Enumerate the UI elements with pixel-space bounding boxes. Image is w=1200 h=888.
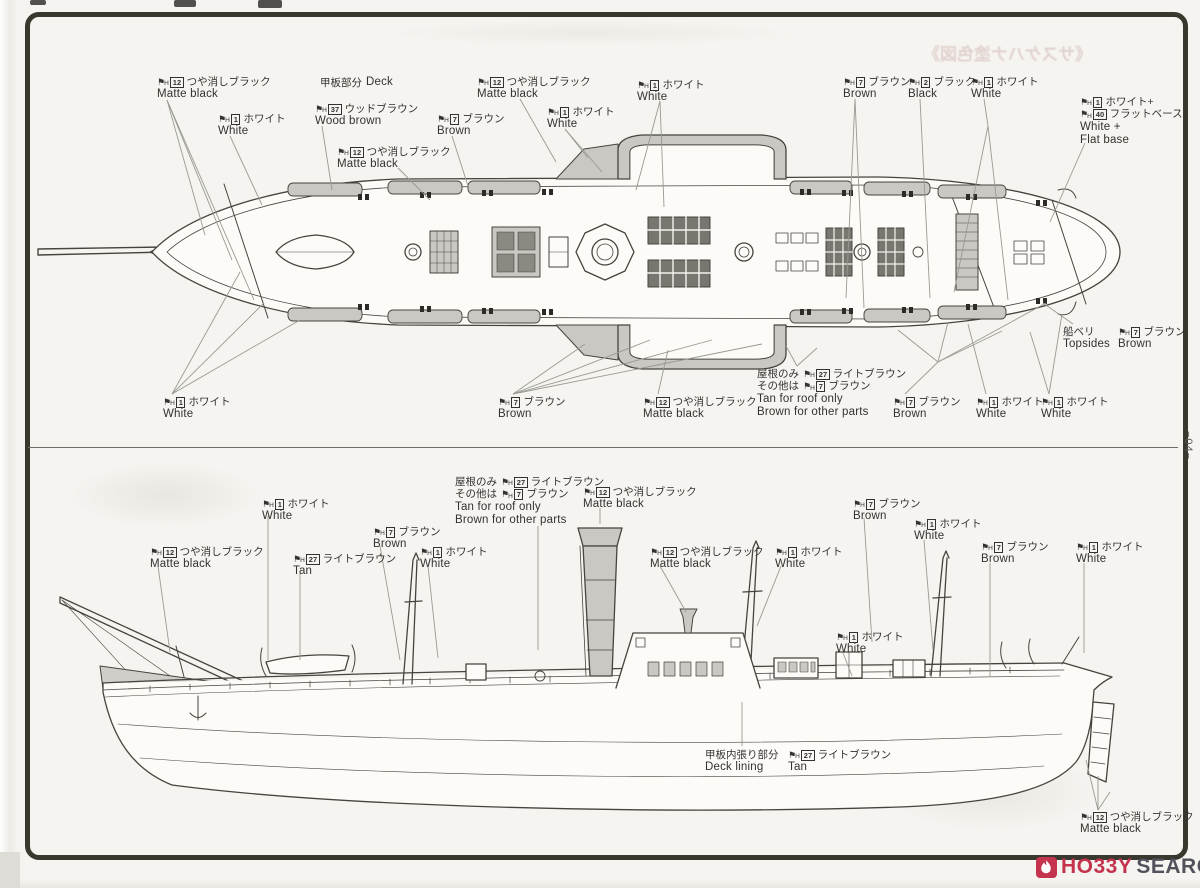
callout-en-text: Matte black [150, 558, 211, 572]
callout-line: Brown [843, 88, 910, 102]
callout-en-text: White [262, 510, 292, 524]
callout-en-text: Deck [366, 76, 393, 90]
callout-line: ⚑H7ブラウン [373, 526, 440, 538]
callout-jp-text: つや消しブラック [1110, 811, 1194, 823]
paint-code: 7 [906, 397, 915, 408]
watermark-search-text: SEARCH [1136, 855, 1200, 879]
callout-line: ⚑H1ホワイト [914, 518, 981, 530]
callout-en-text: Tan for roof only [757, 393, 843, 407]
paint-code: 7 [816, 381, 825, 392]
callout-line: White [637, 91, 704, 105]
paint-flag-icon: ⚑H7 [437, 114, 459, 125]
callout-en-text: Brown [843, 88, 877, 102]
callout-line: Brown [437, 125, 504, 139]
callout-en-text: White [547, 118, 577, 132]
callout-line: ⚑H7ブラウン [437, 113, 504, 125]
paint-code: 12 [490, 77, 503, 88]
paint-flag-icon: ⚑H7 [803, 381, 825, 392]
paint-callout: ⚑H27ライトブラウンTan [788, 749, 891, 775]
paint-callout: ⚑H12つや消しブラックMatte black [583, 486, 697, 512]
callout-jp-text: ブラウン [878, 498, 920, 510]
paint-flag-icon: ⚑H2 [908, 77, 930, 88]
callout-en-text: White [163, 408, 193, 422]
callout-jp-text: ホワイト [243, 113, 285, 125]
callout-jp-text: ブラック [933, 76, 975, 88]
paint-code: 1 [275, 499, 284, 510]
ship-diagram-canvas [0, 0, 1200, 888]
callout-line: ⚑H40フラットベース [1080, 108, 1183, 120]
callout-line: White + [1080, 121, 1183, 135]
paint-code: 12 [596, 487, 609, 498]
paint-callout: ⚑H1ホワイトWhite [775, 546, 842, 572]
callout-jp-text: ブラウン [523, 396, 565, 408]
leader-line [786, 346, 797, 366]
paint-code: 37 [328, 104, 341, 115]
callout-jp-text: ブラウン [526, 488, 568, 500]
callout-jp-text: ホワイト [188, 396, 230, 408]
paint-code: 12 [170, 77, 183, 88]
callout-line: 屋根のみ⚑H27ライトブラウン [455, 476, 604, 488]
callout-line: 甲板部分Deck [320, 76, 393, 90]
callout-jp-text: 屋根のみ [757, 368, 799, 380]
paint-callout: 甲板部分Deck [320, 76, 393, 90]
leader-line [905, 362, 938, 394]
callout-line: ⚑H1ホワイト [637, 79, 704, 91]
callout-line: 屋根のみ⚑H27ライトブラウン [757, 368, 906, 380]
leader-line [938, 331, 1002, 362]
callout-en-text: White [775, 558, 805, 572]
callout-en-text: Brown [437, 125, 471, 139]
paint-flag-icon: ⚑H1 [637, 80, 659, 91]
callout-line: 船ベリ [1063, 326, 1110, 338]
paint-flag-icon: ⚑H12 [583, 487, 610, 498]
callout-en-text: Brown [1118, 338, 1152, 352]
leader-line [924, 540, 933, 650]
callout-jp-text: 船ベリ [1063, 326, 1095, 338]
callout-line: Matte black [643, 408, 757, 422]
callout-en-text: Brown [373, 538, 407, 552]
callout-line: Wood brown [315, 115, 418, 129]
paint-callout: ⚑H1ホワイトWhite [163, 396, 230, 422]
callout-en-text: Brown [981, 553, 1015, 567]
leader-line [1098, 792, 1110, 810]
callout-en-text: Matte black [583, 498, 644, 512]
callout-jp-text: ブラウン [462, 113, 504, 125]
callout-line: ⚑H12つや消しブラック [583, 486, 697, 498]
paint-flag-icon: ⚑H27 [293, 554, 320, 565]
callout-line: Matte black [477, 88, 591, 102]
paint-code: 7 [514, 489, 523, 500]
callout-jp-text: ライトブラウン [323, 553, 397, 565]
callout-line: その他は⚑H7ブラウン [455, 488, 604, 500]
paint-flag-icon: ⚑H1 [218, 114, 240, 125]
paint-callout: ⚑H1ホワイトWhite [547, 106, 614, 132]
callout-jp-text: ホワイト [572, 106, 614, 118]
callout-line: Brown [498, 408, 565, 422]
callout-en-text: White [976, 408, 1006, 422]
leader-line [230, 136, 262, 205]
leader-line [757, 566, 781, 626]
paint-code: 1 [849, 632, 858, 643]
callout-line: Matte black [583, 498, 697, 512]
callout-jp-text: つや消しブラック [180, 546, 264, 558]
deck-plan-drawing [38, 135, 1120, 369]
paint-flag-icon: ⚑H37 [315, 104, 342, 115]
leader-line [864, 518, 872, 642]
paint-callout: ⚑H7ブラウンBrown [1118, 326, 1185, 352]
paint-flag-icon: ⚑H7 [981, 542, 1003, 553]
callout-jp-text: ライトブラウン [833, 368, 907, 380]
callout-en-text: White [637, 91, 667, 105]
callout-line: White [163, 408, 230, 422]
paint-callout: ⚑H12つや消しブラックMatte black [477, 76, 591, 102]
callout-en-text: White [1076, 553, 1106, 567]
paint-flag-icon: ⚑H1 [1076, 542, 1098, 553]
leader-line [968, 324, 986, 394]
callout-line: White [1041, 408, 1108, 422]
callout-line: ⚑H27ライトブラウン [293, 553, 396, 565]
callout-en-text: Brown [498, 408, 532, 422]
paint-callout: ⚑H27ライトブラウンTan [293, 553, 396, 579]
callout-jp-text: つや消しブラック [187, 76, 271, 88]
leader-line [984, 99, 988, 126]
callout-line: ⚑H12つや消しブラック [643, 396, 757, 408]
callout-line: White [1076, 553, 1143, 567]
paint-flag-icon: ⚑H7 [373, 527, 395, 538]
paint-code: 1 [176, 397, 185, 408]
leader-line [428, 566, 438, 658]
paint-code: 27 [514, 477, 527, 488]
paint-code: 7 [856, 77, 865, 88]
callout-line: Deck lining [705, 761, 783, 775]
callout-line: ⚑H12つや消しブラック [157, 76, 271, 88]
paint-flag-icon: ⚑H7 [853, 499, 875, 510]
paint-flag-icon: ⚑H1 [775, 547, 797, 558]
callout-en-text: Flat base [1080, 134, 1129, 148]
callout-line: Tan [788, 761, 891, 775]
paint-code: 1 [650, 80, 659, 91]
callout-jp-text: その他は [757, 380, 799, 392]
paint-callout: ⚑H1ホワイトWhite [218, 113, 285, 139]
callout-line: ⚑H1ホワイト [262, 498, 329, 510]
callout-jp-text: ウッドブラウン [345, 103, 419, 115]
callout-line: ⚑H7ブラウン [843, 76, 910, 88]
callout-jp-text: ホワイト [861, 631, 903, 643]
paint-flag-icon: ⚑H7 [501, 489, 523, 500]
callout-line: White [914, 530, 981, 544]
paint-flag-icon: ⚑H12 [1080, 812, 1107, 823]
callout-line: ⚑H1ホワイト [163, 396, 230, 408]
callout-en-text: White [971, 88, 1001, 102]
paint-flag-icon: ⚑H7 [498, 397, 520, 408]
callout-line: ⚑H7ブラウン [893, 396, 960, 408]
callout-jp-text: つや消しブラック [367, 146, 451, 158]
callout-jp-text: ブラウン [398, 526, 440, 538]
leader-line [1030, 332, 1049, 394]
paint-callout: ⚑H1ホワイトWhite [971, 76, 1038, 102]
callout-en-text: White [914, 530, 944, 544]
callout-jp-text: ホワイト [445, 546, 487, 558]
leader-line [167, 100, 205, 235]
callout-line: White [420, 558, 487, 572]
callout-line: ⚑H1ホワイト [218, 113, 285, 125]
paint-flag-icon: ⚑H12 [477, 77, 504, 88]
callout-jp-text: ブラウン [918, 396, 960, 408]
callout-jp-text: ライトブラウン [818, 749, 892, 761]
paint-code: 7 [511, 397, 520, 408]
paint-callout: ⚑H1ホワイト+⚑H40フラットベースWhite +Flat base [1080, 96, 1183, 148]
paint-flag-icon: ⚑H1 [914, 519, 936, 530]
callout-jp-text: ホワイト [662, 79, 704, 91]
paint-code: 1 [927, 519, 936, 530]
paint-code: 27 [801, 750, 814, 761]
callout-line: ⚑H2ブラック [908, 76, 975, 88]
callout-en-text: Tan [788, 761, 807, 775]
callout-en-text: White + [1080, 121, 1121, 135]
paint-callout: 船ベリTopsides [1063, 326, 1110, 352]
paint-callout: ⚑H7ブラウンBrown [893, 396, 960, 422]
paint-code: 12 [656, 397, 669, 408]
callout-en-text: Matte black [1080, 823, 1141, 837]
paint-callout: ⚑H1ホワイトWhite [637, 79, 704, 105]
paint-code: 1 [788, 547, 797, 558]
callout-line: その他は⚑H7ブラウン [757, 380, 906, 392]
callout-jp-text: ホワイト [800, 546, 842, 558]
callout-line: ⚑H1ホワイト [971, 76, 1038, 88]
callout-line: Matte black [650, 558, 764, 572]
leader-line [172, 272, 240, 394]
callout-jp-text: フラットベース [1110, 108, 1183, 120]
callout-line: White [218, 125, 285, 139]
paint-flag-icon: ⚑H1 [547, 107, 569, 118]
paint-flag-icon: ⚑H1 [976, 397, 998, 408]
callout-line: White [971, 88, 1038, 102]
paint-flag-icon: ⚑H12 [157, 77, 184, 88]
paint-flag-icon: ⚑H27 [501, 477, 528, 488]
paint-flag-icon: ⚑H1 [971, 77, 993, 88]
paint-callout: 屋根のみ⚑H27ライトブラウンその他は⚑H7ブラウンTan for roof o… [757, 368, 906, 420]
callout-jp-text: 屋根のみ [455, 476, 497, 488]
callout-line: Topsides [1063, 338, 1110, 352]
paint-code: 1 [433, 547, 442, 558]
paint-flag-icon: ⚑H27 [788, 750, 815, 761]
callout-line: Brown [1118, 338, 1185, 352]
callout-en-text: Deck lining [705, 761, 763, 775]
paint-flag-icon: ⚑H27 [803, 369, 830, 380]
paint-callout: ⚑H2ブラックBlack [908, 76, 975, 102]
paint-flag-icon: ⚑H7 [1118, 327, 1140, 338]
paint-code: 1 [1093, 97, 1102, 108]
paint-callout: ⚑H7ブラウンBrown [843, 76, 910, 102]
callout-line: Matte black [337, 158, 451, 172]
callout-line: ⚑H12つや消しブラック [477, 76, 591, 88]
callout-en-text: Wood brown [315, 115, 381, 129]
callout-line: ⚑H7ブラウン [853, 498, 920, 510]
callout-line: ⚑H37ウッドブラウン [315, 103, 418, 115]
paint-flag-icon: ⚑H12 [650, 547, 677, 558]
paint-callout: ⚑H1ホワイトWhite [1041, 396, 1108, 422]
callout-line: ⚑H1ホワイト [420, 546, 487, 558]
paint-code: 12 [1093, 812, 1106, 823]
scanned-instruction-page: { "page": { "number": "−04−", "bleedthro… [0, 0, 1200, 888]
callout-line: ⚑H27ライトブラウン [788, 749, 891, 761]
callout-line: Brown for other parts [757, 406, 906, 420]
paint-callout: 屋根のみ⚑H27ライトブラウンその他は⚑H7ブラウンTan for roof o… [455, 476, 604, 528]
paint-code: 12 [350, 147, 363, 158]
callout-line: ⚑H1ホワイト [775, 546, 842, 558]
paint-code: 7 [994, 542, 1003, 553]
paint-flag-icon: ⚑H1 [262, 499, 284, 510]
callout-jp-text: ホワイト+ [1105, 96, 1153, 108]
callout-jp-text: ホワイト [1066, 396, 1108, 408]
paint-flag-icon: ⚑H7 [843, 77, 865, 88]
paint-code: 2 [921, 77, 930, 88]
callout-en-text: Brown [893, 408, 927, 422]
callout-line: ⚑H12つや消しブラック [337, 146, 451, 158]
callout-line: Tan for roof only [455, 501, 604, 515]
paint-flag-icon: ⚑H1 [420, 547, 442, 558]
callout-jp-text: 甲板部分 [320, 77, 362, 89]
callout-line: White [262, 510, 329, 524]
paint-code: 1 [989, 397, 998, 408]
paint-callout: ⚑H12つや消しブラックMatte black [643, 396, 757, 422]
callout-jp-text: つや消しブラック [673, 396, 757, 408]
leader-line [797, 348, 817, 366]
paint-code: 27 [306, 554, 319, 565]
callout-en-text: White [420, 558, 450, 572]
callout-line: Matte black [1080, 823, 1194, 837]
leader-line [898, 330, 938, 362]
paint-flag-icon: ⚑H12 [337, 147, 364, 158]
callout-en-text: Tan [293, 565, 312, 579]
callout-line: Matte black [157, 88, 271, 102]
watermark-hobby-text: HO33Y [1061, 855, 1132, 879]
callout-en-text: Matte black [477, 88, 538, 102]
paint-callout: ⚑H1ホワイトWhite [914, 518, 981, 544]
callout-jp-text: ホワイト [939, 518, 981, 530]
paint-callout: ⚑H1ホワイトWhite [262, 498, 329, 524]
paint-flag-icon: ⚑H40 [1080, 109, 1107, 120]
callout-line: ⚑H1ホワイト [1076, 541, 1143, 553]
paint-flag-icon: ⚑H1 [1080, 97, 1102, 108]
callout-line: White [976, 408, 1043, 422]
leader-line [660, 566, 686, 612]
paint-callout: ⚑H12つや消しブラックMatte black [150, 546, 264, 572]
paint-callout: ⚑H37ウッドブラウンWood brown [315, 103, 418, 129]
paint-code: 12 [163, 547, 176, 558]
paint-callout: ⚑H7ブラウンBrown [853, 498, 920, 524]
paint-callout: ⚑H12つや消しブラックMatte black [650, 546, 764, 572]
callout-line: Tan [293, 565, 396, 579]
callout-line: Matte black [150, 558, 264, 572]
paint-flag-icon: ⚑H12 [643, 397, 670, 408]
callout-en-text: Brown for other parts [455, 514, 567, 528]
leader-line [938, 322, 948, 362]
paint-callout: ⚑H1ホワイトWhite [976, 396, 1043, 422]
paint-code: 27 [816, 369, 829, 380]
callout-jp-text: ホワイト [1001, 396, 1043, 408]
callout-line: ⚑H1ホワイト [976, 396, 1043, 408]
callout-line: ⚑H1ホワイト [836, 631, 903, 643]
paint-flag-icon: ⚑H7 [893, 397, 915, 408]
callout-en-text: Brown for other parts [757, 406, 869, 420]
callout-jp-text: つや消しブラック [613, 486, 697, 498]
callout-line: Brown for other parts [455, 514, 604, 528]
callout-line: Tan for roof only [757, 393, 906, 407]
paint-callout: ⚑H12つや消しブラックMatte black [1080, 811, 1194, 837]
callout-en-text: Tan for roof only [455, 501, 541, 515]
callout-line: ⚑H1ホワイト [547, 106, 614, 118]
callout-line: ⚑H7ブラウン [981, 541, 1048, 553]
paint-code: 7 [866, 499, 875, 510]
callout-line: Flat base [1080, 134, 1183, 148]
paint-callout: ⚑H12つや消しブラックMatte black [157, 76, 271, 102]
paint-code: 1 [1089, 542, 1098, 553]
paint-code: 1 [1054, 397, 1063, 408]
leader-line [158, 566, 170, 652]
paint-code: 1 [231, 114, 240, 125]
callout-jp-text: ブラウン [828, 380, 870, 392]
paint-code: 1 [560, 107, 569, 118]
paint-code: 7 [1131, 327, 1140, 338]
callout-line: White [836, 643, 903, 657]
paint-callout: 甲板内張り部分Deck lining [705, 749, 783, 775]
callout-line: Black [908, 88, 975, 102]
callout-en-text: Matte black [643, 408, 704, 422]
callout-en-text: Black [908, 88, 937, 102]
callout-line: White [547, 118, 614, 132]
callout-jp-text: ホワイト [1101, 541, 1143, 553]
callout-jp-text: つや消しブラック [507, 76, 591, 88]
callout-en-text: Brown [853, 510, 887, 524]
paint-flag-icon: ⚑H12 [150, 547, 177, 558]
callout-line: ⚑H1ホワイト [1041, 396, 1108, 408]
paint-flag-icon: ⚑H1 [836, 632, 858, 643]
callout-line: ⚑H12つや消しブラック [650, 546, 764, 558]
callout-en-text: Matte black [157, 88, 218, 102]
leader-line [322, 126, 332, 190]
callout-en-text: White [1041, 408, 1071, 422]
hobbysearch-watermark: HO33Y SEARCH [1036, 855, 1200, 879]
paint-callout: ⚑H7ブラウンBrown [437, 113, 504, 139]
callout-en-text: Topsides [1063, 338, 1110, 352]
callout-jp-text: つや消しブラック [680, 546, 764, 558]
callout-jp-text: ブラウン [1006, 541, 1048, 553]
callout-en-text: White [836, 643, 866, 657]
callout-line: ⚑H7ブラウン [1118, 326, 1185, 338]
callout-en-text: White [218, 125, 248, 139]
callout-line: ⚑H12つや消しブラック [1080, 811, 1194, 823]
paint-code: 7 [450, 114, 459, 125]
callout-line: White [775, 558, 842, 572]
paint-callout: ⚑H1ホワイトWhite [420, 546, 487, 572]
paint-flag-icon: ⚑H1 [163, 397, 185, 408]
paint-callout: ⚑H1ホワイトWhite [836, 631, 903, 657]
callout-en-text: Matte black [337, 158, 398, 172]
paint-code: 12 [663, 547, 676, 558]
paint-callout: ⚑H1ホワイトWhite [1076, 541, 1143, 567]
callout-line: ⚑H12つや消しブラック [150, 546, 264, 558]
callout-en-text: Matte black [650, 558, 711, 572]
callout-jp-text: ホワイト [287, 498, 329, 510]
paint-flag-icon: ⚑H1 [1041, 397, 1063, 408]
callout-line: 甲板内張り部分 [705, 749, 783, 761]
paint-callout: ⚑H12つや消しブラックMatte black [337, 146, 451, 172]
callout-jp-text: ブラウン [868, 76, 910, 88]
paint-code: 1 [984, 77, 993, 88]
paint-code: 40 [1093, 109, 1106, 120]
callout-line: Brown [853, 510, 920, 524]
